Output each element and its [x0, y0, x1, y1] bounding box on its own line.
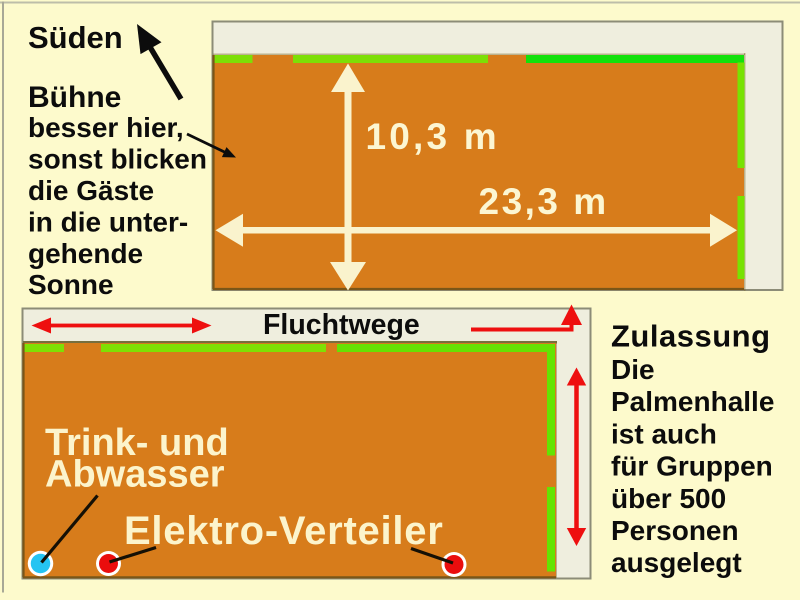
- svg-text:Zulassung: Zulassung: [611, 319, 771, 354]
- svg-text:in die unter-: in die unter-: [28, 207, 188, 238]
- svg-text:Elektro-Verteiler: Elektro-Verteiler: [124, 509, 444, 553]
- svg-text:Abwasser: Abwasser: [45, 454, 225, 496]
- svg-text:für Gruppen: für Gruppen: [611, 451, 773, 482]
- svg-text:besser hier,: besser hier,: [28, 112, 184, 143]
- svg-text:die Gäste: die Gäste: [28, 175, 154, 206]
- svg-text:23,3 m: 23,3 m: [479, 181, 609, 222]
- svg-text:über 500: über 500: [611, 483, 726, 514]
- svg-text:ist auch: ist auch: [611, 418, 717, 449]
- svg-text:Bühne: Bühne: [28, 81, 121, 114]
- svg-text:Die: Die: [611, 354, 655, 385]
- svg-text:Personen: Personen: [611, 515, 739, 546]
- svg-text:Palmenhalle: Palmenhalle: [611, 386, 774, 417]
- svg-text:gehende: gehende: [28, 238, 143, 269]
- svg-text:10,3 m: 10,3 m: [366, 116, 500, 157]
- svg-text:sonst blicken: sonst blicken: [28, 144, 207, 175]
- svg-text:Fluchtwege: Fluchtwege: [263, 309, 420, 341]
- svg-text:Sonne: Sonne: [28, 269, 114, 300]
- svg-text:Süden: Süden: [28, 20, 123, 55]
- svg-text:ausgelegt: ausgelegt: [611, 547, 742, 578]
